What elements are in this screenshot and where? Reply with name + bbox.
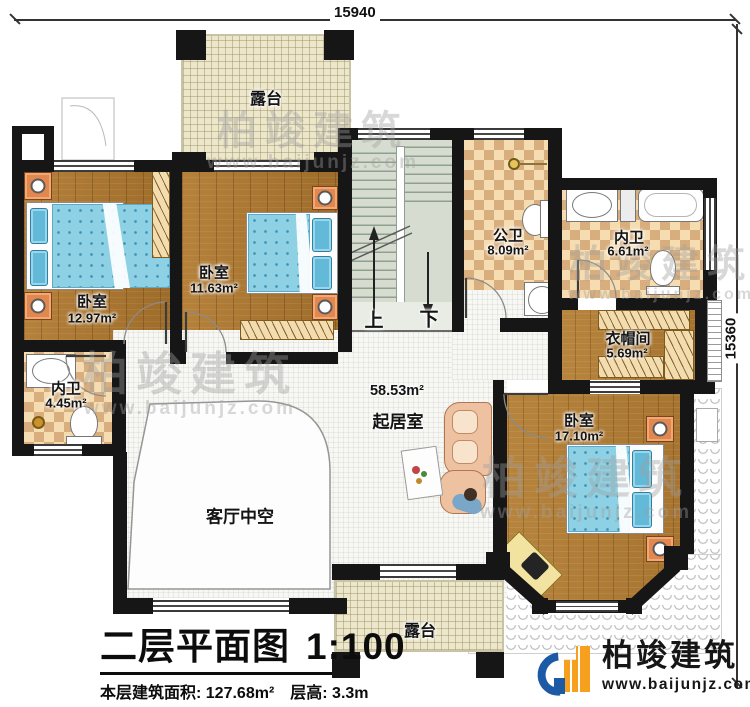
wall (680, 394, 694, 554)
room-area-bedroom-left: 12.97m² (68, 311, 116, 326)
wall (493, 394, 507, 562)
brand-name: 柏竣建筑 (602, 640, 738, 671)
title-block: 二层平面图1:100 本层建筑面积: 127.68m²层高: 3.3m (100, 616, 340, 703)
pillow (632, 450, 652, 488)
room-area-bath-left: 4.45m² (45, 396, 86, 411)
window (474, 128, 524, 140)
nightstand (646, 416, 674, 442)
pillow (30, 250, 48, 286)
wall-niche (22, 134, 44, 160)
roof-skylight (696, 408, 718, 442)
stairs-up-label: 上 (364, 306, 383, 333)
pillow (312, 218, 332, 252)
nightstand (312, 294, 338, 320)
room-area-public-bath: 8.09m² (487, 243, 528, 258)
wall (456, 564, 504, 580)
pillow (632, 492, 652, 528)
coffee-table (401, 446, 444, 501)
dimension-top-value: 15940 (330, 4, 380, 21)
column (176, 30, 206, 60)
logo-block (554, 678, 565, 694)
room-label-void: 客厅中空 (206, 503, 274, 528)
ceiling-light-icon (508, 158, 520, 170)
window (704, 198, 716, 270)
window (153, 600, 289, 612)
corner-block (532, 598, 548, 614)
wall (640, 380, 700, 394)
wall (332, 564, 380, 580)
pillow (312, 256, 332, 290)
floor-height-text: 层高: 3.3m (290, 685, 368, 702)
exterior-ledge (707, 300, 722, 382)
wardrobe (240, 320, 334, 340)
plan-title-line: 二层平面图1:100 (100, 616, 340, 670)
stair-stringer (396, 146, 405, 306)
wall (170, 160, 182, 342)
wall (493, 380, 504, 394)
niche-curve (70, 106, 106, 146)
sofa-cushion (452, 440, 478, 464)
room-label-bedroom-left: 卧室 (77, 291, 107, 312)
plan-info-line: 本层建筑面积: 127.68m²层高: 3.3m (100, 679, 340, 703)
window (34, 444, 82, 456)
wall (113, 452, 127, 600)
room-area-bedroom-mid: 11.63m² (190, 281, 238, 296)
wall (452, 290, 464, 332)
exterior-niche (62, 98, 114, 160)
nightstand (312, 186, 338, 210)
nightstand (24, 292, 52, 320)
stair-steps-left (352, 146, 396, 298)
wardrobe (664, 330, 694, 380)
lamp-icon (318, 191, 333, 206)
stairs-down-label: 下 (419, 305, 438, 332)
floor-plan-canvas: 柏竣建筑 www.baijunjz.com 柏竣建筑 www.baijunjz.… (0, 0, 750, 707)
brand-url: www.baijunjz.com (602, 676, 738, 694)
room-area-living: 58.53m² (370, 383, 424, 399)
window (214, 160, 300, 172)
room-label-living: 起居室 (373, 408, 424, 433)
toilet (650, 250, 676, 286)
wall (560, 178, 705, 190)
plan-scale: 1:100 (306, 626, 406, 667)
person-head (464, 488, 477, 501)
window (358, 128, 430, 140)
sofa-cushion (452, 410, 478, 434)
lamp-icon (318, 300, 333, 315)
wall (452, 128, 464, 290)
room-area-cloakroom: 5.69m² (606, 346, 647, 361)
wall (548, 192, 562, 380)
wall (560, 298, 578, 310)
wall (226, 352, 338, 364)
floor-area-text: 本层建筑面积: 127.68m² (100, 685, 274, 702)
sliding-door (380, 564, 456, 578)
table-flowers-icon (412, 466, 420, 474)
bathtub-inner (644, 193, 697, 217)
stair-steps-right (405, 146, 452, 202)
wardrobe (152, 168, 170, 258)
cased-opening (590, 381, 640, 393)
wall (12, 160, 24, 456)
wall (289, 598, 347, 614)
sink (572, 192, 612, 218)
corner-block (664, 546, 688, 570)
nightstand (24, 172, 52, 200)
floor-drain-icon (32, 416, 45, 429)
room-label-terrace-bottom: 露台 (404, 617, 436, 641)
brand-logo: 柏竣建筑 www.baijunjz.com (538, 640, 738, 694)
room-label-bedroom-master: 卧室 (564, 410, 594, 431)
window (54, 160, 134, 172)
wall (113, 598, 153, 614)
column (324, 30, 354, 60)
column (476, 652, 504, 678)
divider-panel (620, 188, 636, 222)
wall (12, 340, 114, 352)
wall (112, 340, 126, 456)
lamp-icon (653, 422, 668, 437)
toilet-tank (646, 286, 680, 295)
wall (548, 380, 590, 394)
logo-mark-icon (538, 642, 596, 700)
wall (500, 318, 562, 332)
room-area-bedroom-master: 17.10m² (555, 429, 603, 444)
lamp-icon (31, 299, 46, 314)
lamp-icon (31, 179, 46, 194)
pillow (30, 208, 48, 244)
toilet (70, 406, 98, 440)
title-underline (100, 672, 332, 675)
dimension-right-value: 15360 (722, 314, 739, 364)
room-label-terrace-top: 露台 (250, 85, 282, 109)
bay-window (556, 601, 618, 612)
wall (338, 128, 352, 352)
room-label-bedroom-mid: 卧室 (199, 262, 229, 283)
corner-block (626, 598, 642, 614)
plan-title: 二层平面图 (100, 626, 290, 667)
wall (170, 340, 186, 364)
room-area-bath-right: 6.61m² (607, 244, 648, 259)
